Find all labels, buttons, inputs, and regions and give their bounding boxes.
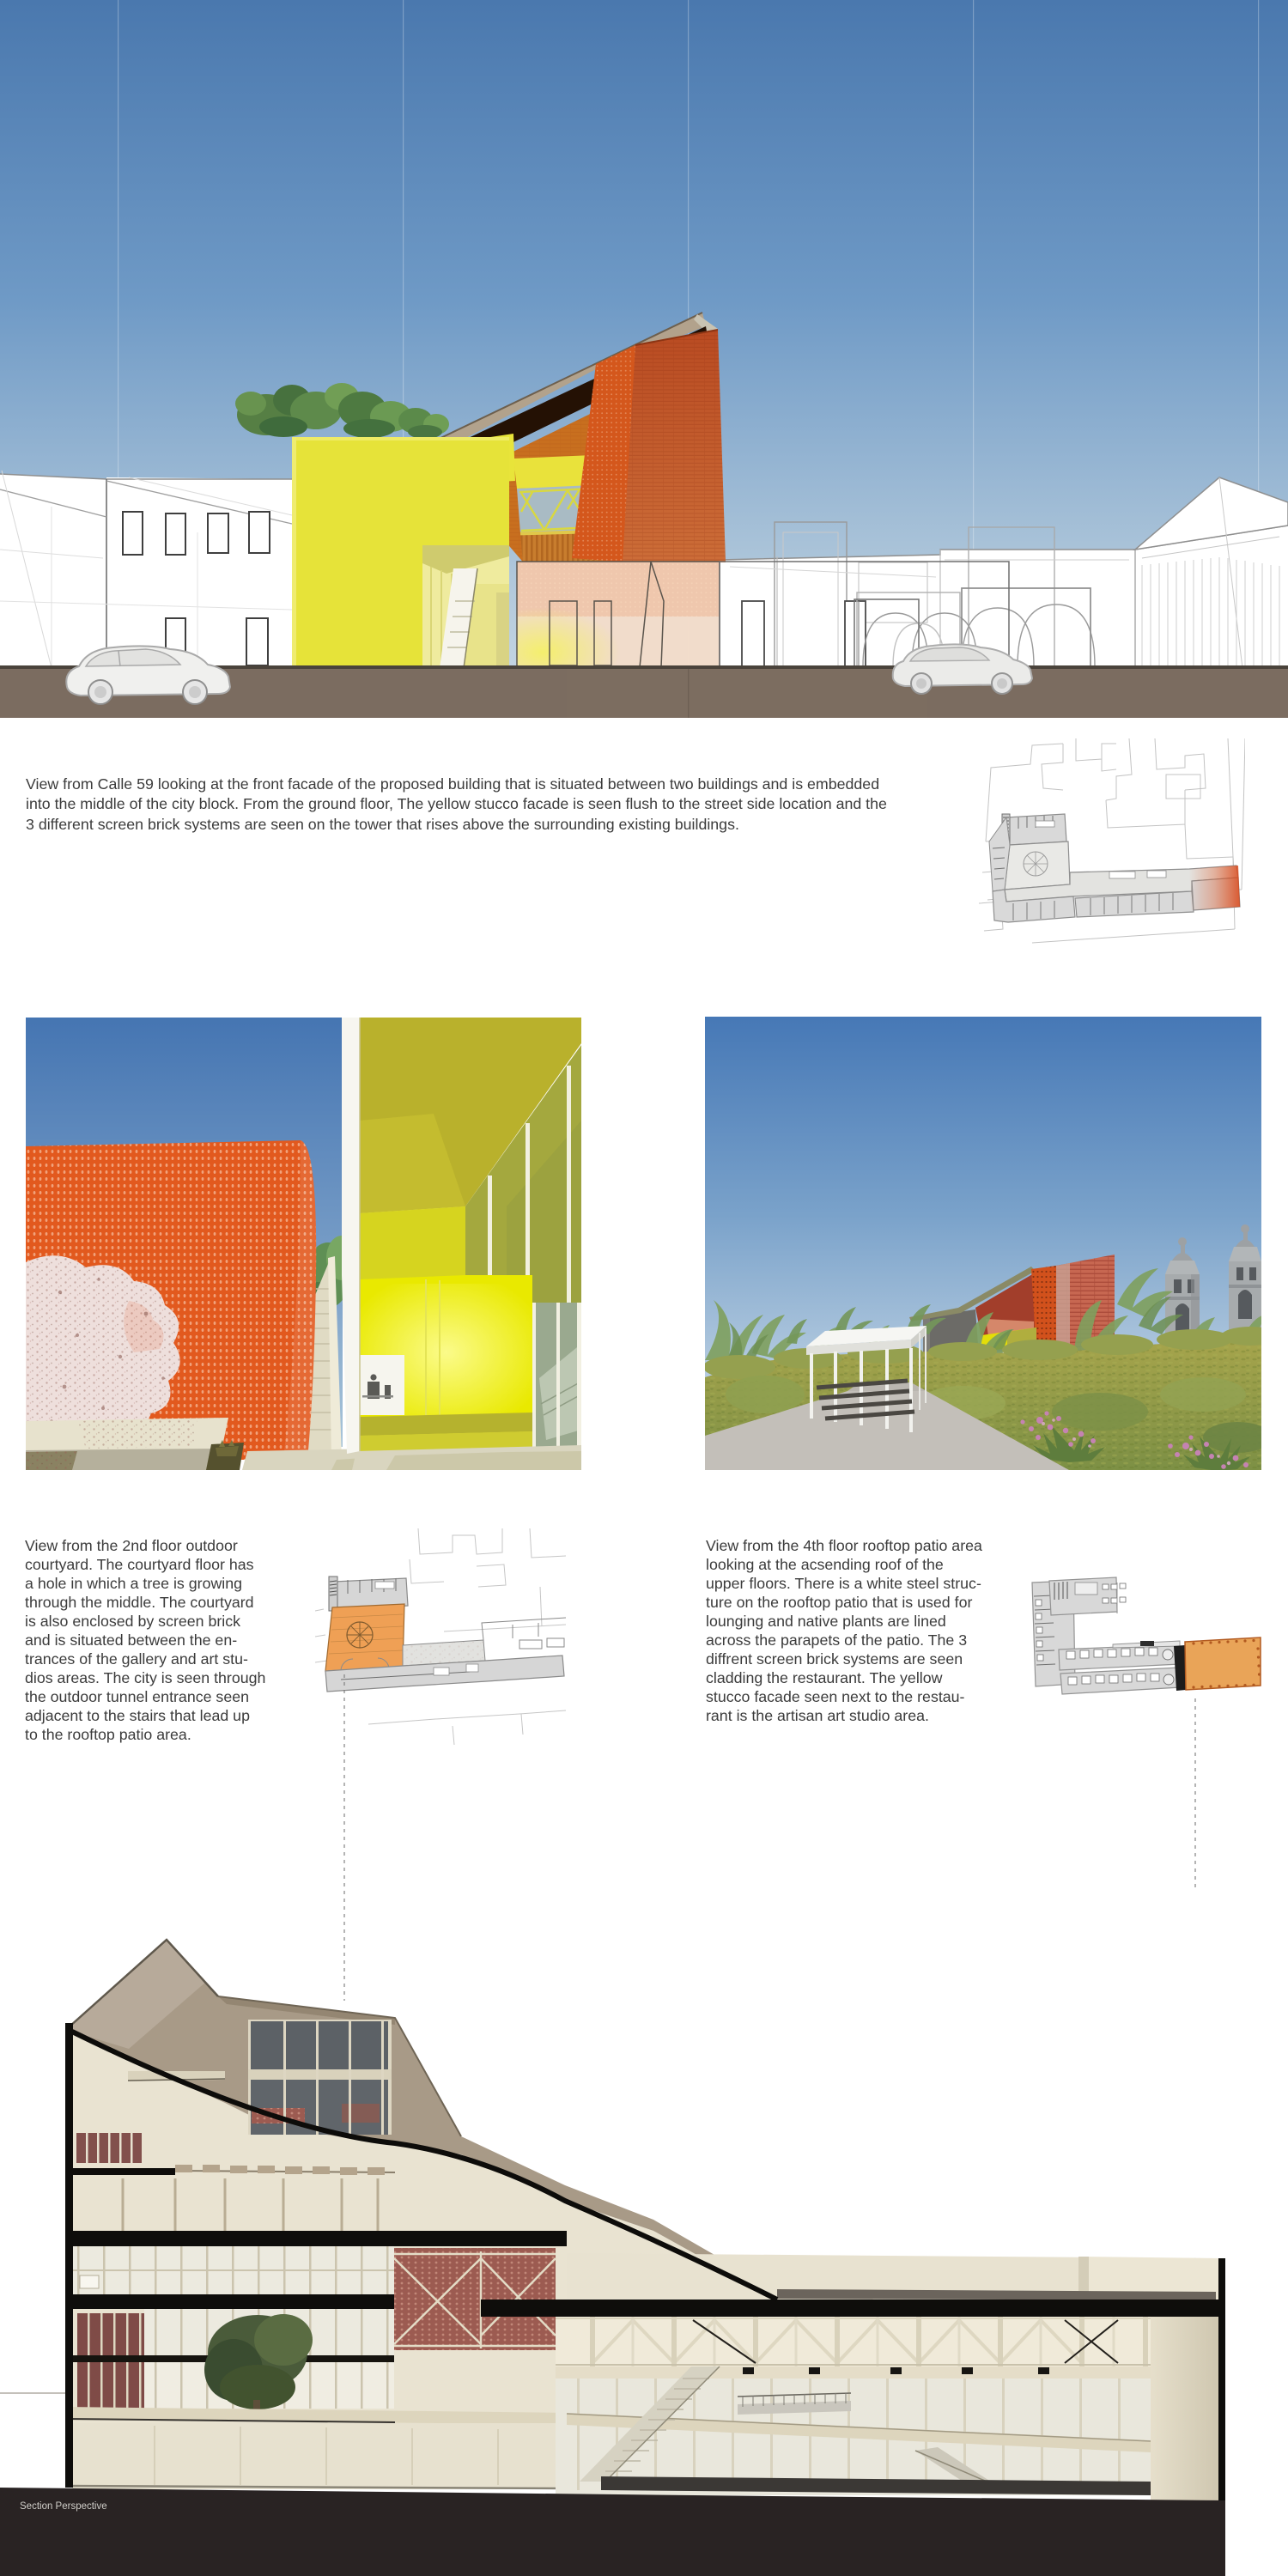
svg-text:Section Perspective: Section Perspective: [20, 2501, 107, 2512]
